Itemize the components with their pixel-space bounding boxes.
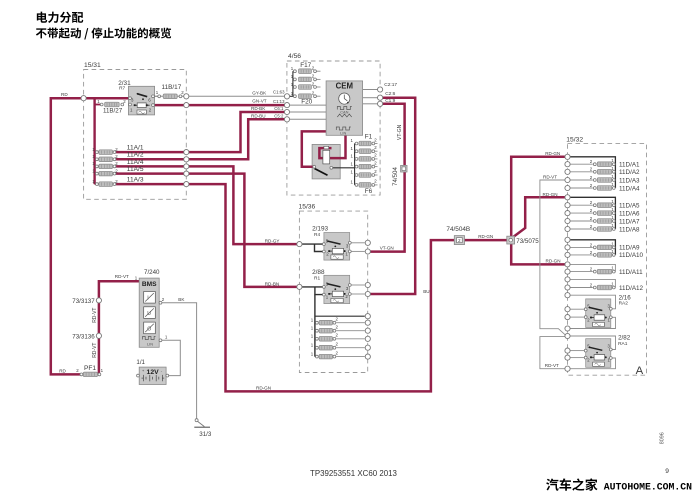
svg-text:11D/A6: 11D/A6: [619, 210, 640, 217]
svg-text:11D/A9: 11D/A9: [619, 245, 640, 252]
svg-text:GN-VT: GN-VT: [252, 98, 266, 103]
svg-text:11A/4: 11A/4: [127, 159, 144, 166]
svg-text:VT-GN: VT-GN: [380, 245, 394, 250]
svg-text:TP39253551 XC60 2013: TP39253551 XC60 2013: [310, 469, 397, 478]
svg-text:C2:6: C2:6: [385, 91, 395, 97]
svg-text:RD-BU: RD-BU: [251, 113, 266, 118]
svg-text:BMS: BMS: [142, 281, 157, 288]
svg-text:PF1: PF1: [84, 365, 96, 372]
svg-text:A: A: [636, 365, 644, 377]
svg-text:RA1: RA1: [618, 341, 628, 347]
svg-text:11A/5: 11A/5: [127, 166, 144, 173]
svg-text:11D/A5: 11D/A5: [619, 203, 640, 210]
svg-text:I: I: [147, 296, 148, 302]
svg-text:11A/2: 11A/2: [127, 152, 144, 159]
svg-text:11D/A8: 11D/A8: [619, 226, 640, 233]
svg-text:1/1: 1/1: [136, 359, 145, 366]
svg-text:2/193: 2/193: [312, 225, 328, 232]
svg-text:11D/A10: 11D/A10: [619, 252, 644, 259]
svg-text:11B/27: 11B/27: [103, 108, 123, 115]
svg-text:C5:2: C5:2: [274, 113, 284, 118]
svg-text:73/5075: 73/5075: [516, 238, 539, 245]
svg-text:74/504: 74/504: [392, 167, 399, 186]
svg-text:2/82: 2/82: [618, 335, 631, 342]
svg-text:O: O: [147, 326, 151, 332]
svg-text:74/504B: 74/504B: [446, 226, 470, 233]
svg-text:11D/A2: 11D/A2: [619, 169, 640, 176]
svg-text:RD-GN: RD-GN: [256, 385, 271, 390]
svg-text:BU: BU: [423, 289, 429, 294]
svg-text:31/3: 31/3: [199, 431, 212, 438]
svg-text:F17: F17: [300, 62, 311, 69]
svg-text:RD: RD: [61, 92, 68, 97]
svg-text:C2:17: C2:17: [384, 82, 397, 88]
svg-text:RD-GN: RD-GN: [545, 151, 560, 156]
svg-text:8096: 8096: [660, 432, 666, 444]
svg-text:RD-VT: RD-VT: [543, 174, 557, 179]
svg-text:F1: F1: [365, 133, 373, 140]
svg-text:RD-VT: RD-VT: [92, 343, 98, 358]
svg-text:RD: RD: [59, 369, 66, 374]
svg-text:2/16: 2/16: [619, 294, 632, 301]
svg-text:AUTOHOME.COM.CN: AUTOHOME.COM.CN: [604, 481, 692, 492]
svg-text:RA2: RA2: [619, 301, 629, 307]
svg-text:12V: 12V: [147, 369, 160, 376]
svg-text:C1:13: C1:13: [273, 99, 285, 104]
svg-text:RD-GY: RD-GY: [265, 239, 280, 244]
svg-text:11B/17: 11B/17: [162, 84, 182, 91]
svg-text:RD-VT: RD-VT: [92, 308, 98, 323]
svg-text:73/3136: 73/3136: [72, 333, 95, 340]
svg-text:7/240: 7/240: [144, 269, 160, 276]
svg-text:BK: BK: [178, 297, 185, 302]
svg-text:15/36: 15/36: [299, 204, 316, 211]
svg-text:F6: F6: [365, 188, 373, 195]
svg-text:U: U: [147, 311, 151, 317]
svg-text:CEM: CEM: [336, 81, 353, 90]
svg-text:73/3137: 73/3137: [72, 298, 95, 305]
svg-text:R7: R7: [119, 86, 125, 92]
svg-text:11A/1: 11A/1: [127, 145, 144, 152]
svg-text:11D/A1: 11D/A1: [619, 162, 640, 169]
svg-text:CAN: CAN: [340, 109, 348, 114]
svg-text:RD-GN: RD-GN: [478, 234, 493, 239]
svg-text:RD-BN: RD-BN: [265, 282, 280, 287]
svg-text:RD-BK: RD-BK: [251, 106, 266, 111]
svg-text:R4: R4: [314, 232, 320, 238]
svg-text:RD-GN: RD-GN: [546, 258, 561, 263]
svg-text:4/56: 4/56: [288, 53, 301, 60]
svg-text:LIN: LIN: [147, 342, 153, 347]
svg-text:F20: F20: [301, 98, 312, 105]
svg-text:C1:9: C1:9: [385, 98, 395, 104]
svg-text:2/88: 2/88: [312, 269, 325, 276]
svg-text:11A/3: 11A/3: [127, 177, 144, 184]
svg-text:RD-VT: RD-VT: [115, 274, 129, 279]
svg-text:C1:63: C1:63: [273, 90, 285, 95]
svg-text:11D/A3: 11D/A3: [619, 177, 640, 184]
svg-text:11D/A12: 11D/A12: [619, 285, 644, 292]
svg-text:9: 9: [665, 468, 669, 475]
svg-text:VT-GN: VT-GN: [397, 124, 403, 140]
svg-text:RD-VT: RD-VT: [545, 363, 559, 368]
svg-text:15/31: 15/31: [84, 62, 101, 69]
svg-text:RD-GN: RD-GN: [543, 192, 558, 197]
svg-text:GY-BK: GY-BK: [252, 90, 267, 95]
svg-text:11D/A4: 11D/A4: [619, 185, 640, 192]
svg-text:11D/A7: 11D/A7: [619, 218, 640, 225]
svg-text:LIN: LIN: [340, 131, 346, 136]
svg-text:11D/A11: 11D/A11: [619, 269, 643, 276]
svg-text:15/32: 15/32: [566, 136, 583, 143]
svg-text:C6:1: C6:1: [274, 106, 284, 111]
svg-text:R1: R1: [314, 276, 320, 282]
